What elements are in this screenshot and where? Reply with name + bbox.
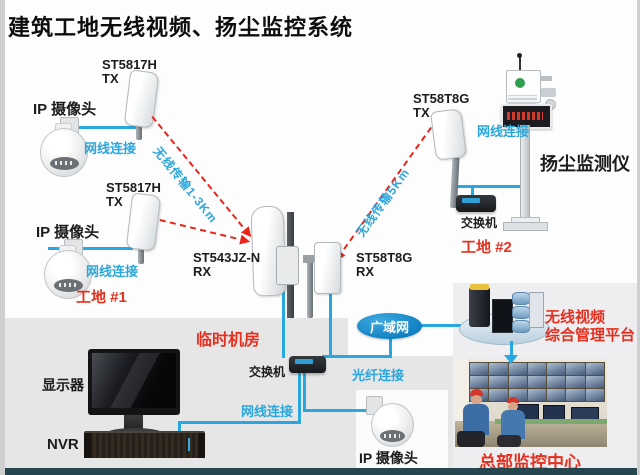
antenna2-port: TX: [106, 195, 161, 209]
camera2-label: IP 摄像头: [36, 221, 99, 242]
wan-ellipse: 广域网: [357, 313, 422, 339]
site2-switch-label: 交换机: [461, 214, 497, 231]
server-cylinder: [512, 320, 530, 333]
nvr-label: NVR: [47, 436, 79, 453]
video-wall-screen: [586, 389, 604, 401]
wireless-link2-label: 无线传输5Km: [352, 164, 413, 240]
cable-switch-cam-v: [303, 373, 306, 412]
monitor-screen: [92, 353, 176, 408]
video-wall-screen: [547, 389, 565, 401]
site2-switch-ports: [462, 198, 480, 203]
monitor-bezel: [88, 349, 180, 415]
camera2-ir-leds: [59, 283, 77, 287]
rx2-mast: [307, 258, 313, 318]
antenna3-model: ST58T8G: [413, 92, 469, 106]
server-cylinder: [512, 292, 530, 305]
video-wall-screen: [489, 363, 507, 375]
antenna1-port: TX: [102, 72, 157, 86]
camera3-dome: [371, 403, 414, 447]
server-tower1-cap: [470, 284, 489, 290]
dust-monitor-louver: [508, 95, 537, 104]
room-switch-ports: [295, 359, 313, 364]
dust-monitor-base: [503, 222, 548, 231]
antenna1-model: ST5817H: [102, 58, 157, 72]
cable-switch-nvr-h: [178, 421, 301, 424]
antenna3-port: TX: [413, 106, 469, 120]
bottom-bar: [0, 468, 640, 475]
monitor-screen-glare: [97, 353, 165, 408]
server-cabinet: [529, 292, 544, 328]
cable3-label: 网线连接: [477, 121, 529, 140]
rx2-panel: [314, 242, 341, 294]
nvr-right-panel: [198, 433, 205, 458]
machine-room-label: 临时机房: [196, 326, 260, 350]
cable2-label: 网线连接: [86, 261, 138, 280]
room-switch-label: 交换机: [249, 363, 285, 380]
video-wall-screen: [470, 376, 488, 388]
antenna2-label: ST5817H TX: [106, 181, 161, 209]
fiber-label: 光纤连接: [352, 365, 404, 384]
rx2-label: ST58T8G RX: [356, 251, 412, 279]
camera1-dome: [40, 128, 88, 177]
server-cylinder-stack: [512, 292, 530, 331]
rx1-model: ST543JZ-N: [193, 251, 260, 265]
video-wall-screen: [586, 363, 604, 375]
antenna2-model: ST5817H: [106, 181, 161, 195]
cable-tx-elbow-h: [455, 185, 526, 188]
video-wall-screen: [470, 363, 488, 375]
video-wall-screen: [489, 376, 507, 388]
video-wall-screen: [566, 389, 584, 401]
antenna3-label: ST58T8G TX: [413, 92, 469, 120]
camera1-label: IP 摄像头: [33, 98, 96, 119]
video-wall-screen: [509, 363, 527, 375]
page-title: 建筑工地无线视频、扬尘监控系统: [8, 10, 353, 42]
diagram-canvas: 建筑工地无线视频、扬尘监控系统 ST5817H TX IP 摄像头 网线连接 S…: [0, 0, 640, 475]
server-tower2: [492, 299, 513, 333]
dust-led-text: [507, 112, 543, 120]
wan-elbow-h: [322, 355, 392, 358]
camera1-ir-leds: [55, 161, 73, 165]
cable-rx1-switch: [282, 284, 285, 358]
cable-switch-cam-h: [303, 409, 373, 412]
video-wall-screen: [547, 376, 565, 388]
rx1-feed-box: [276, 246, 299, 285]
rx2-model: ST58T8G: [356, 251, 412, 265]
left-edge: [0, 0, 5, 475]
control-room-photo: [455, 359, 607, 447]
rx1-label: ST543JZ-N RX: [193, 251, 260, 279]
video-wall-screen: [586, 376, 604, 388]
camera3-lens-band: [380, 430, 405, 442]
monitor-label: 显示器: [42, 375, 84, 395]
cable1-label: 网线连接: [84, 138, 136, 157]
cable-switch-nvr-v1: [298, 373, 301, 424]
nvr-led: [188, 438, 190, 451]
camera1-lens-band: [50, 157, 79, 170]
wan-label: 广域网: [370, 317, 409, 336]
dust-monitor-pole: [520, 125, 530, 226]
video-wall-screen: [547, 363, 565, 375]
wireless-link2-line: [160, 219, 247, 242]
rx1-port: RX: [193, 265, 260, 279]
camera3-ir-leds: [384, 434, 400, 438]
nvr-box: [84, 431, 205, 458]
video-wall-screen: [528, 389, 546, 401]
room-cable-label: 网线连接: [241, 401, 293, 420]
dust-monitor-label: 扬尘监测仪: [540, 150, 630, 176]
site1-label: 工地 #1: [76, 286, 127, 307]
chair1: [457, 431, 485, 447]
camera3-label: IP 摄像头: [359, 448, 418, 468]
video-wall-screen: [566, 363, 584, 375]
chair2: [497, 435, 521, 447]
platform-label-line2: 综合管理平台: [545, 324, 635, 345]
platform-photo-arrowhead: [504, 355, 518, 364]
operator2: [501, 397, 525, 439]
dust-monitor-logo: [515, 78, 525, 88]
site2-label: 工地 #2: [461, 236, 512, 257]
room-switch: [289, 356, 326, 373]
video-wall-screen: [509, 376, 527, 388]
site2-switch: [456, 195, 496, 212]
nvr-left-panel: [84, 433, 91, 458]
operator1: [463, 389, 489, 435]
video-wall: [469, 362, 605, 402]
video-wall-screen: [528, 363, 546, 375]
server-tower1: [469, 287, 490, 327]
wan-cloud-line: [421, 324, 462, 327]
wireless-link2-arrowhead: [239, 235, 251, 247]
video-wall-screen: [528, 376, 546, 388]
antenna1-label: ST5817H TX: [102, 58, 157, 86]
server-cylinder: [512, 306, 530, 319]
video-wall-screen: [566, 376, 584, 388]
rx2-port: RX: [356, 265, 412, 279]
dust-sensor-arm2: [540, 88, 556, 97]
cable-rx2-switch: [329, 292, 332, 358]
dust-monitor-mast-tip: [517, 53, 522, 58]
